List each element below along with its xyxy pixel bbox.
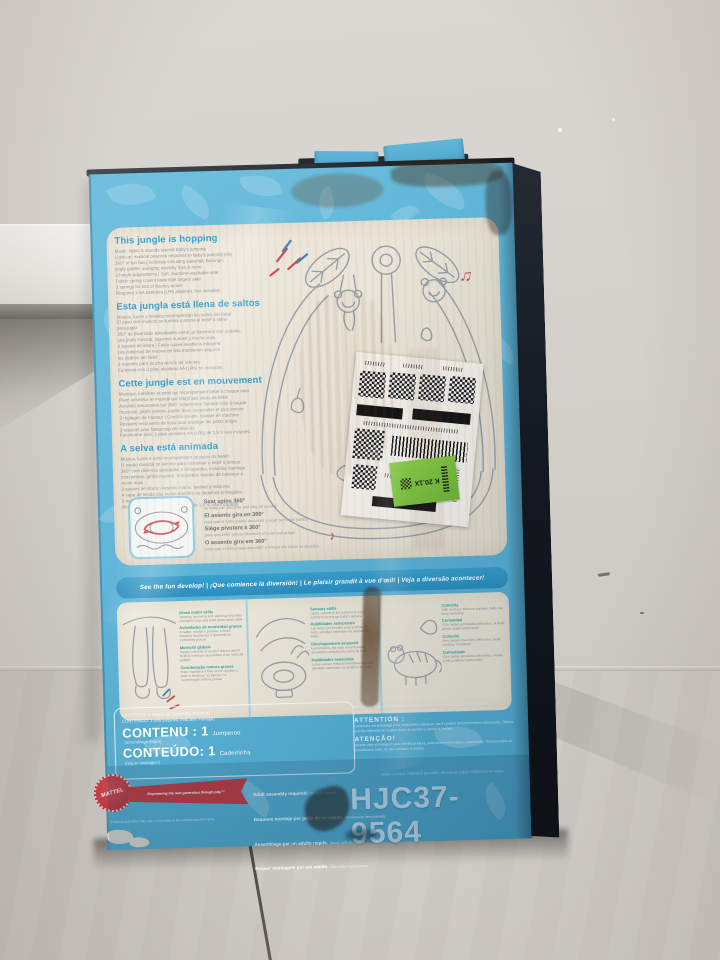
qr-code: [388, 372, 416, 400]
main-info-panel: This jungle is hopping Music, lights & s…: [106, 217, 507, 566]
wall-scuff-mark: [640, 612, 644, 614]
body-english: Music, lights & sounds reward baby's jum…: [115, 244, 284, 296]
music-note-icon: ♪: [328, 527, 337, 543]
body-french: Musique, lumières et sons qui récompense…: [119, 387, 288, 439]
cardboard-scuff: [298, 290, 395, 476]
features-french: Cette jungle est en mouvement Musique, l…: [118, 374, 288, 439]
sticker-qr-code: [400, 477, 412, 489]
label-fine-print: [363, 421, 459, 434]
callout-fr-small: pour que bébé puisse découvrir et jouer …: [205, 524, 505, 537]
assembly-pt-small: Não requer ferramentas.: [331, 864, 369, 869]
assembly-pt: Requer montagem por um adulto.Não requer…: [255, 851, 376, 879]
assembly-pt-bold: Requer montagem por um adulto.: [255, 864, 329, 871]
heading-english: This jungle is hopping: [114, 231, 282, 247]
sticker-text: K 20.1X: [414, 476, 440, 486]
tiger-toy-line-art: [383, 602, 442, 708]
wall-speck: [558, 128, 562, 132]
qr-code: [448, 376, 476, 404]
cardboard-scuff: [410, 349, 446, 550]
label-black-bar: [356, 404, 403, 419]
features-english: This jungle is hopping Music, lights & s…: [114, 231, 284, 296]
green-inventory-sticker: K 20.1X: [389, 456, 460, 507]
box-front-face: This jungle is hopping Music, lights & s…: [89, 163, 532, 851]
label-black-bar: [412, 408, 471, 424]
body-spanish: Música, luces y sonidos recompensan los …: [117, 310, 287, 374]
contents-fr-name: Jumperoo: [213, 730, 241, 737]
contents-pt-name: Cadeirinha: [220, 751, 251, 758]
seat-spin-inset-diagram: [128, 496, 196, 560]
dev1-body-pt: Pular, equilibrar e ficar em pé ajudam o…: [181, 668, 245, 682]
body-portuguese: Música, luzes e sons recompensam os pulo…: [121, 452, 290, 510]
qr-code: [352, 428, 385, 461]
features-spanish: Esta jungla está llena de saltos Música,…: [116, 297, 286, 374]
music-notes-icon: ♫: [458, 265, 474, 287]
feature-text-column: This jungle is hopping Music, lights & s…: [114, 226, 290, 510]
product-box: This jungle is hopping Music, lights & s…: [89, 162, 560, 850]
attention-block: IMPORTANT! Keep this packaging for futur…: [354, 701, 519, 753]
blue-accent-dashes: [283, 240, 308, 263]
heading-spanish: Esta jungla está llena de saltos: [116, 297, 284, 313]
seat-spin-callouts: Seat spins 360° so baby can discover and…: [204, 491, 505, 553]
dev-panel-gross-motor: Gross motor skills Jumping, bouncing and…: [117, 599, 252, 721]
callout-fr-bold: Siège pivotant à 360°: [205, 518, 505, 532]
dev3-body-fr: Avec autant d'activités différentes, béb…: [442, 637, 506, 647]
label-fine-print: [365, 361, 385, 367]
dev-panel-curiosity: Curiosity With so many different activit…: [379, 592, 512, 714]
features-portuguese: A selva está animada Música, luzes e son…: [120, 439, 290, 510]
dev3-body-pt: Com tantas atividades diferentes, o bebê…: [443, 653, 507, 663]
jumperoo-line-art-illustration: [106, 217, 507, 566]
qr-code: [351, 464, 377, 490]
label-fine-print: [403, 363, 423, 369]
photo-scene: This jungle is hopping Music, lights & s…: [0, 0, 720, 960]
red-accent-dashes: [270, 249, 301, 276]
callout-es-bold: El asiento gira en 360°: [204, 504, 504, 518]
qr-code: [358, 370, 386, 398]
callout-pt-bold: O assento gira em 360°: [205, 531, 505, 545]
dev1-body-en: Jumping, bouncing and standing help baby…: [179, 613, 243, 623]
dev3-body-es: ¡Con tantas actividades diferentes, el b…: [442, 621, 506, 631]
callout-es-small: para que el bebé pueda descubrir y jugar…: [204, 510, 504, 523]
banner-text: See the fun develop! | ¡Que comience la …: [140, 575, 485, 592]
cardboard-tear: [360, 587, 381, 707]
label-fine-print: [443, 366, 463, 372]
callout-pt: O assento gira em 360° para que o bebê p…: [205, 531, 505, 550]
heading-portuguese: A selva está animada: [120, 439, 288, 455]
heading-french: Cette jungle est en mouvement: [118, 374, 286, 390]
dev-panel-1-text: Gross motor skills Jumping, bouncing and…: [179, 605, 244, 682]
callout-pt-small: para que o bebê possa descobrir e brinca…: [205, 537, 505, 550]
dev1-body-es: Al saltar, rebotar y pararse, el bebé fo…: [179, 629, 243, 643]
baby-legs-line-art: [121, 609, 180, 715]
bottom-shading: [107, 754, 533, 850]
callout-fr: Siège pivotant à 360° pour que bébé puis…: [205, 518, 505, 537]
callout-es: El asiento gira en 360° para que el bebé…: [204, 504, 504, 523]
hands-on-seat-line-art: [252, 605, 311, 711]
dev-panel-3-text: Curiosity With so many different activit…: [441, 598, 506, 663]
dirt-smudge: [291, 172, 384, 209]
dev3-body-en: With so many different activities, baby …: [442, 605, 506, 615]
wall-speck: [612, 118, 615, 121]
dev1-body-fr: Sauter, rebondir et se tenir debout aide…: [180, 648, 244, 662]
sticker-barcode: [441, 465, 450, 492]
qr-code: [418, 374, 446, 402]
top-down-seat-diagram: [130, 498, 194, 558]
